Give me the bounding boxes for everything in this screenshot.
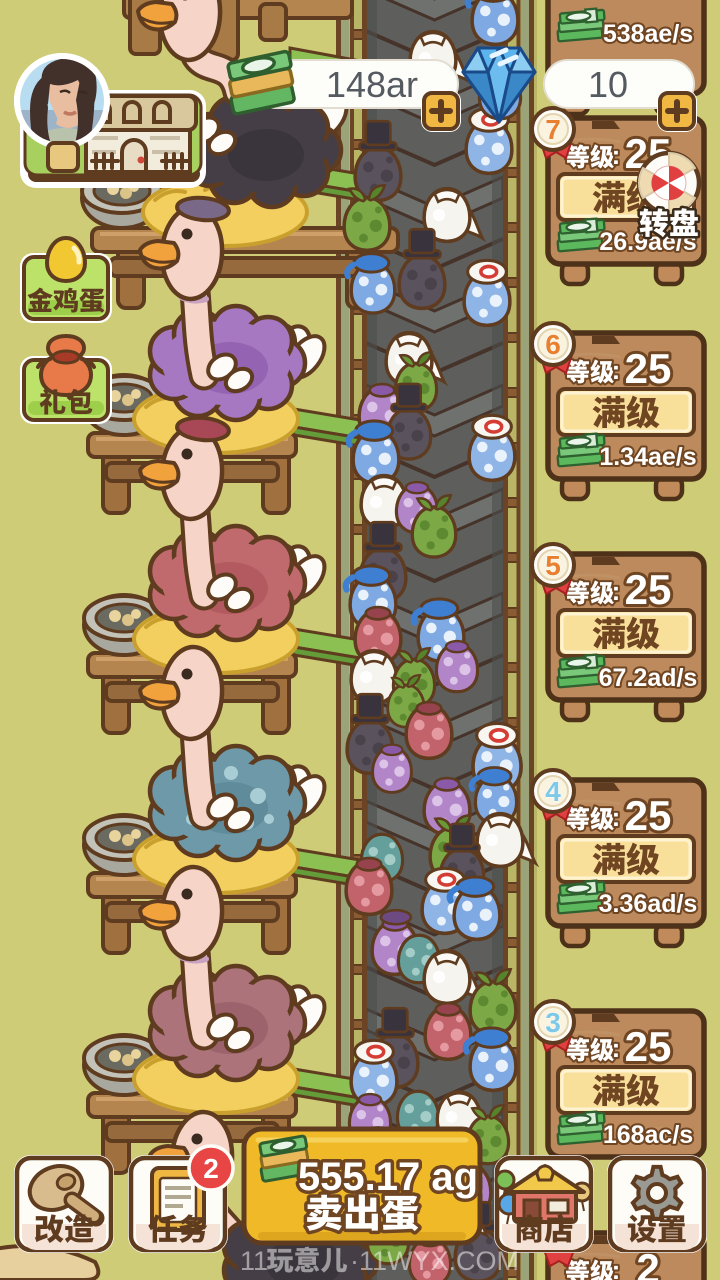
svg-text:25: 25 bbox=[625, 566, 672, 613]
svg-text:5: 5 bbox=[545, 550, 561, 581]
svg-text::: : bbox=[612, 1255, 621, 1280]
svg-text::: : bbox=[612, 140, 621, 170]
svg-text:·11WYX.COM: ·11WYX.COM bbox=[350, 1246, 519, 1276]
svg-text::: : bbox=[612, 1033, 621, 1063]
svg-text:3: 3 bbox=[545, 1007, 561, 1038]
svg-text:538ae/s: 538ae/s bbox=[603, 20, 693, 48]
svg-text:3.36ad/s: 3.36ad/s bbox=[599, 890, 698, 918]
svg-text:25: 25 bbox=[625, 345, 672, 392]
svg-text:10: 10 bbox=[588, 64, 628, 105]
svg-text:4: 4 bbox=[545, 776, 561, 807]
svg-text:1.34ae/s: 1.34ae/s bbox=[599, 443, 696, 471]
svg-text:25: 25 bbox=[625, 792, 672, 839]
svg-text:6: 6 bbox=[545, 329, 561, 360]
svg-text:67.2ad/s: 67.2ad/s bbox=[599, 664, 698, 692]
svg-text:168ac/s: 168ac/s bbox=[603, 1121, 693, 1149]
svg-text::: : bbox=[612, 576, 621, 606]
svg-text:25: 25 bbox=[625, 1023, 672, 1070]
svg-text:11: 11 bbox=[240, 1246, 268, 1276]
svg-text::: : bbox=[612, 355, 621, 385]
svg-text:148ar: 148ar bbox=[326, 64, 418, 105]
svg-text::: : bbox=[612, 802, 621, 832]
svg-text:2: 2 bbox=[203, 1153, 219, 1184]
svg-text:7: 7 bbox=[545, 114, 561, 145]
